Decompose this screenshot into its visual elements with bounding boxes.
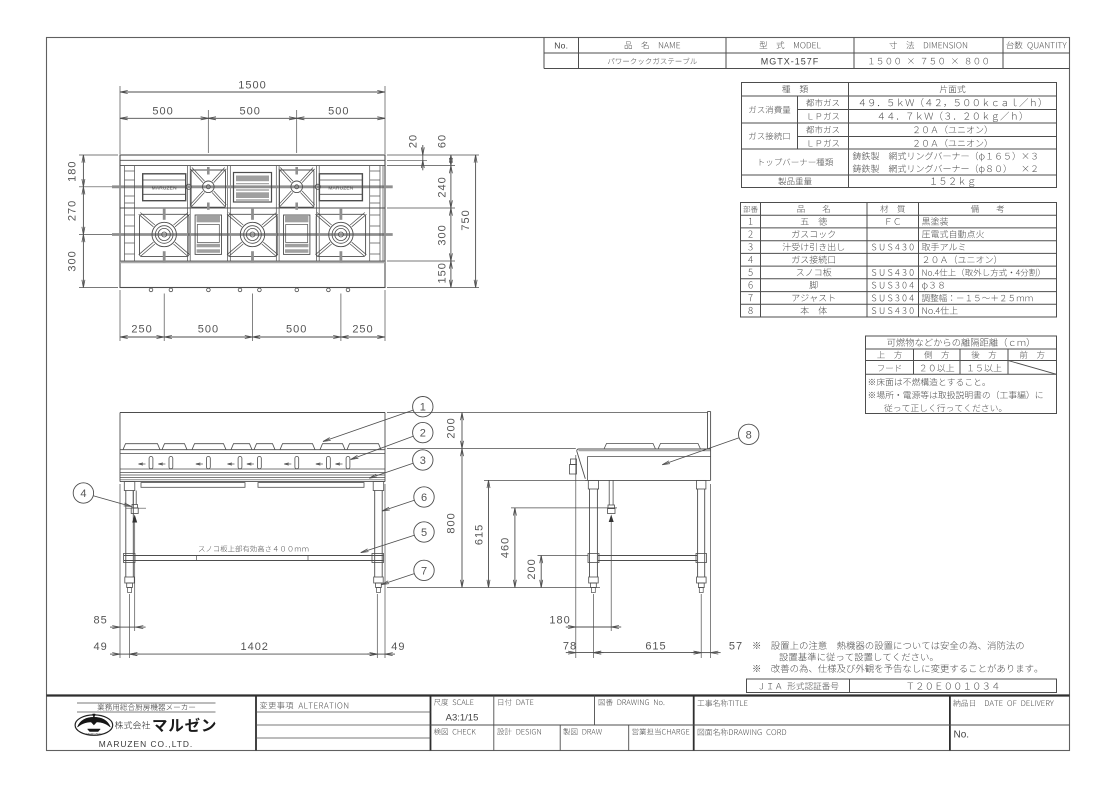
svg-text:500: 500 (286, 323, 307, 335)
svg-text:200: 200 (445, 417, 457, 438)
svg-text:8: 8 (746, 429, 752, 441)
svg-text:500: 500 (240, 106, 261, 118)
svg-text:300: 300 (67, 250, 79, 271)
svg-text:85: 85 (93, 615, 107, 627)
svg-text:MGTX-157F: MGTX-157F (761, 56, 820, 66)
svg-text:5: 5 (421, 527, 427, 539)
svg-text:500: 500 (152, 106, 173, 118)
svg-text:1500: 1500 (238, 79, 266, 91)
svg-text:MARUZEN CO.,LTD.: MARUZEN CO.,LTD. (99, 739, 193, 749)
svg-text:270: 270 (67, 200, 79, 221)
svg-text:250: 250 (131, 323, 152, 335)
svg-text:1402: 1402 (240, 641, 268, 653)
svg-text:49: 49 (93, 641, 107, 653)
svg-text:2: 2 (420, 428, 426, 440)
svg-text:4: 4 (80, 488, 86, 500)
svg-text:1: 1 (420, 402, 426, 414)
svg-text:500: 500 (198, 323, 219, 335)
svg-text:460: 460 (500, 537, 512, 558)
svg-text:78: 78 (563, 640, 577, 652)
svg-text:150: 150 (436, 262, 448, 283)
svg-text:615: 615 (645, 640, 666, 652)
svg-text:3: 3 (420, 455, 426, 467)
svg-text:49: 49 (391, 641, 405, 653)
svg-text:750: 750 (460, 209, 472, 230)
svg-text:180: 180 (67, 161, 79, 182)
svg-text:No.: No. (554, 40, 568, 50)
svg-text:6: 6 (421, 492, 427, 504)
svg-text:7: 7 (421, 565, 427, 577)
svg-text:500: 500 (328, 106, 349, 118)
svg-text:300: 300 (436, 224, 448, 245)
svg-text:250: 250 (352, 323, 373, 335)
svg-text:60: 60 (436, 134, 448, 148)
svg-text:200: 200 (526, 558, 538, 579)
svg-text:615: 615 (473, 524, 485, 545)
svg-text:20: 20 (408, 134, 420, 148)
svg-text:800: 800 (445, 512, 457, 533)
svg-text:A3:1/15: A3:1/15 (446, 713, 479, 724)
svg-text:MARUZEN: MARUZEN (152, 186, 177, 192)
svg-text:MARUZEN: MARUZEN (328, 186, 353, 192)
svg-text:57: 57 (729, 640, 743, 652)
svg-text:No.: No. (954, 730, 970, 741)
svg-text:MARUZEN: MARUZEN (86, 732, 101, 736)
svg-text:180: 180 (549, 615, 570, 627)
svg-text:240: 240 (436, 176, 448, 197)
